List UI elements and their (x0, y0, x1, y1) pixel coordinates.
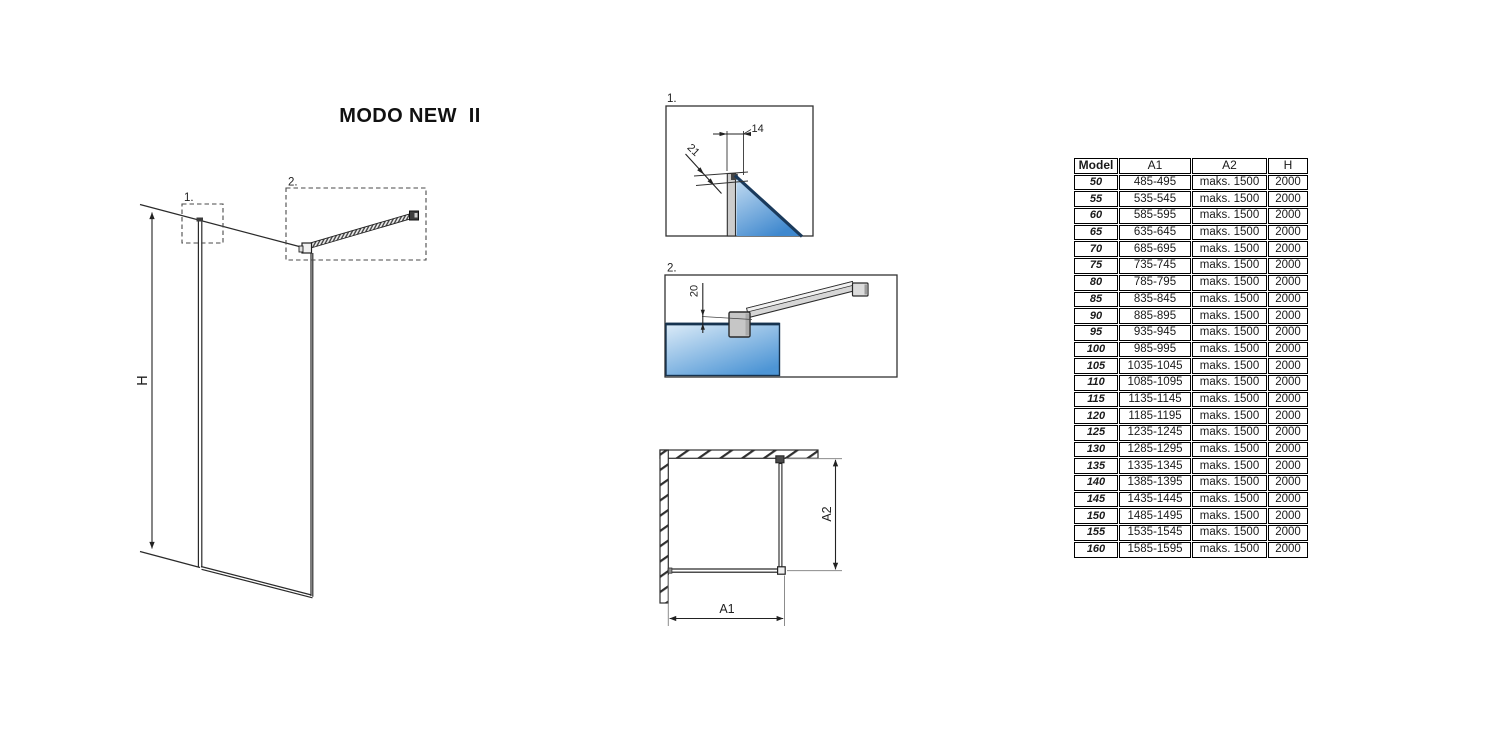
table-cell-a1: 585-595 (1119, 208, 1191, 224)
support-bar-top-view (779, 464, 782, 568)
table-cell-a2: maks. 1500 (1192, 275, 1267, 291)
table-cell-model: 160 (1074, 542, 1118, 558)
table-row: 1201185-1195maks. 15002000 (1074, 408, 1308, 424)
detail-1-callout-box (182, 204, 223, 243)
table-cell-a1: 785-795 (1119, 275, 1191, 291)
detail-1-drawing: 1. 14 21 (655, 88, 830, 246)
table-row: 75735-745maks. 15002000 (1074, 258, 1308, 274)
table-cell-model: 65 (1074, 225, 1118, 241)
table-row: 100985-995maks. 15002000 (1074, 342, 1308, 358)
detail-2-callout-label: 2. (288, 177, 298, 189)
table-cell-model: 75 (1074, 258, 1118, 274)
table-cell-model: 50 (1074, 175, 1118, 191)
table-cell-model: 90 (1074, 308, 1118, 324)
table-cell-a1: 935-945 (1119, 325, 1191, 341)
table-cell-a2: maks. 1500 (1192, 325, 1267, 341)
table-cell-h: 2000 (1268, 525, 1308, 541)
table-cell-a2: maks. 1500 (1192, 308, 1267, 324)
table-cell-model: 115 (1074, 392, 1118, 408)
table-row: 95935-945maks. 15002000 (1074, 325, 1308, 341)
bar-wall-mount-top-view (776, 456, 784, 463)
glass-panel-top-view (668, 569, 781, 572)
table-cell-a2: maks. 1500 (1192, 225, 1267, 241)
table-row: 60585-595maks. 15002000 (1074, 208, 1308, 224)
table-row: 55535-545maks. 15002000 (1074, 191, 1308, 207)
table-cell-a2: maks. 1500 (1192, 175, 1267, 191)
table-cell-h: 2000 (1268, 392, 1308, 408)
glass-section-2 (666, 324, 780, 376)
bar-wall-mount-face (865, 285, 868, 295)
table-cell-a2: maks. 1500 (1192, 358, 1267, 374)
table-cell-model: 125 (1074, 425, 1118, 441)
top-view-drawing: A2 A1 (648, 442, 854, 638)
table-cell-a2: maks. 1500 (1192, 525, 1267, 541)
spec-table: Model A1 A2 H 50485-495maks. 15002000555… (1073, 157, 1309, 559)
table-row: 50485-495maks. 15002000 (1074, 175, 1308, 191)
main-drawing: 1. 2. H (128, 168, 440, 616)
dim-20-label: 20 (689, 285, 701, 297)
header-a2: A2 (1192, 158, 1267, 174)
header-model: Model (1074, 158, 1118, 174)
table-cell-h: 2000 (1268, 175, 1308, 191)
table-cell-h: 2000 (1268, 425, 1308, 441)
table-cell-h: 2000 (1268, 375, 1308, 391)
table-row: 1501485-1495maks. 15002000 (1074, 508, 1308, 524)
table-cell-a1: 1385-1395 (1119, 475, 1191, 491)
detail-2-label: 2. (667, 263, 677, 275)
table-cell-h: 2000 (1268, 208, 1308, 224)
table-cell-h: 2000 (1268, 191, 1308, 207)
glass-clamp-shade (746, 314, 750, 336)
table-cell-a1: 1285-1295 (1119, 442, 1191, 458)
table-cell-a1: 1135-1145 (1119, 392, 1191, 408)
svg-defs (0, 0, 2, 2)
table-cell-a2: maks. 1500 (1192, 241, 1267, 257)
table-cell-h: 2000 (1268, 292, 1308, 308)
table-cell-h: 2000 (1268, 225, 1308, 241)
wall-top (660, 450, 818, 458)
table-cell-model: 145 (1074, 492, 1118, 508)
table-cell-h: 2000 (1268, 542, 1308, 558)
table-cell-h: 2000 (1268, 275, 1308, 291)
product-title: MODO NEW II (330, 105, 490, 128)
table-cell-a2: maks. 1500 (1192, 458, 1267, 474)
table-row: 1351335-1345maks. 15002000 (1074, 458, 1308, 474)
wall-anchor-notch (415, 213, 418, 218)
table-cell-a2: maks. 1500 (1192, 508, 1267, 524)
table-cell-a1: 535-545 (1119, 191, 1191, 207)
table-cell-h: 2000 (1268, 325, 1308, 341)
table-cell-a1: 1535-1545 (1119, 525, 1191, 541)
table-cell-h: 2000 (1268, 442, 1308, 458)
dim-a2-label: A2 (820, 506, 834, 521)
table-row: 90885-895maks. 15002000 (1074, 308, 1308, 324)
table-cell-a1: 485-495 (1119, 175, 1191, 191)
table-cell-a1: 635-645 (1119, 225, 1191, 241)
table-cell-h: 2000 (1268, 342, 1308, 358)
table-cell-h: 2000 (1268, 458, 1308, 474)
table-cell-h: 2000 (1268, 475, 1308, 491)
spec-table-container: Model A1 A2 H 50485-495maks. 15002000555… (1073, 157, 1309, 559)
table-row: 1301285-1295maks. 15002000 (1074, 442, 1308, 458)
table-cell-h: 2000 (1268, 358, 1308, 374)
table-cell-a2: maks. 1500 (1192, 408, 1267, 424)
table-cell-a1: 1235-1245 (1119, 425, 1191, 441)
table-cell-model: 55 (1074, 191, 1118, 207)
table-cell-a1: 1185-1195 (1119, 408, 1191, 424)
table-cell-model: 60 (1074, 208, 1118, 224)
table-cell-model: 110 (1074, 375, 1118, 391)
table-row: 1401385-1395maks. 15002000 (1074, 475, 1308, 491)
table-cell-a1: 685-695 (1119, 241, 1191, 257)
table-row: 1101085-1095maks. 15002000 (1074, 375, 1308, 391)
spec-table-head: Model A1 A2 H (1074, 158, 1308, 174)
table-row: 1151135-1145maks. 15002000 (1074, 392, 1308, 408)
table-row: 85835-845maks. 15002000 (1074, 292, 1308, 308)
table-cell-a2: maks. 1500 (1192, 542, 1267, 558)
top-bracket-clip (299, 246, 303, 252)
table-cell-a2: maks. 1500 (1192, 258, 1267, 274)
table-cell-a2: maks. 1500 (1192, 492, 1267, 508)
table-cell-model: 130 (1074, 442, 1118, 458)
table-cell-a2: maks. 1500 (1192, 292, 1267, 308)
wall-profile-top-view (668, 568, 672, 573)
table-cell-model: 85 (1074, 292, 1118, 308)
table-row: 1051035-1045maks. 15002000 (1074, 358, 1308, 374)
dimension-a1: A1 (668, 575, 784, 626)
glass-panel-outline (140, 205, 313, 598)
table-cell-a1: 1485-1495 (1119, 508, 1191, 524)
table-cell-h: 2000 (1268, 241, 1308, 257)
table-cell-h: 2000 (1268, 408, 1308, 424)
table-row: 70685-695maks. 15002000 (1074, 241, 1308, 257)
table-cell-a2: maks. 1500 (1192, 392, 1267, 408)
table-cell-a1: 985-995 (1119, 342, 1191, 358)
table-cell-a2: maks. 1500 (1192, 425, 1267, 441)
bracket-top-view (778, 567, 786, 574)
table-cell-h: 2000 (1268, 308, 1308, 324)
table-cell-model: 105 (1074, 358, 1118, 374)
table-cell-model: 135 (1074, 458, 1118, 474)
height-dimension-label: H (135, 375, 151, 385)
table-cell-a1: 885-895 (1119, 308, 1191, 324)
table-cell-a1: 1085-1095 (1119, 375, 1191, 391)
header-h: H (1268, 158, 1308, 174)
dim-14-label: 14 (752, 123, 764, 135)
table-cell-model: 80 (1074, 275, 1118, 291)
table-cell-a2: maks. 1500 (1192, 342, 1267, 358)
detail-1-label: 1. (667, 93, 677, 105)
table-cell-a1: 835-845 (1119, 292, 1191, 308)
table-cell-a1: 735-745 (1119, 258, 1191, 274)
table-cell-a1: 1585-1595 (1119, 542, 1191, 558)
table-cell-a2: maks. 1500 (1192, 475, 1267, 491)
diagram-page: MODO NEW II 1. 2. H 1. (0, 0, 1500, 756)
table-row: 1451435-1445maks. 15002000 (1074, 492, 1308, 508)
table-cell-model: 155 (1074, 525, 1118, 541)
wall-profile-cap (197, 218, 204, 222)
table-cell-h: 2000 (1268, 258, 1308, 274)
table-cell-model: 70 (1074, 241, 1118, 257)
table-cell-model: 150 (1074, 508, 1118, 524)
dimension-a2: A2 (786, 459, 842, 571)
table-cell-a2: maks. 1500 (1192, 375, 1267, 391)
detail-2-drawing: 2. 20 (648, 256, 910, 384)
header-row: Model A1 A2 H (1074, 158, 1308, 174)
table-cell-a1: 1035-1045 (1119, 358, 1191, 374)
wall-left (660, 450, 668, 603)
spec-table-body: 50485-495maks. 1500200055535-545maks. 15… (1074, 175, 1308, 558)
table-cell-a1: 1335-1345 (1119, 458, 1191, 474)
detail-1-callout-label: 1. (184, 192, 194, 204)
dim-a1-label: A1 (719, 602, 734, 616)
table-cell-model: 100 (1074, 342, 1118, 358)
support-bar (306, 214, 410, 249)
header-a1: A1 (1119, 158, 1191, 174)
table-cell-a2: maks. 1500 (1192, 208, 1267, 224)
table-cell-h: 2000 (1268, 508, 1308, 524)
table-row: 1251235-1245maks. 15002000 (1074, 425, 1308, 441)
table-row: 80785-795maks. 15002000 (1074, 275, 1308, 291)
table-row: 1551535-1545maks. 15002000 (1074, 525, 1308, 541)
table-row: 65635-645maks. 15002000 (1074, 225, 1308, 241)
table-cell-a2: maks. 1500 (1192, 442, 1267, 458)
table-cell-h: 2000 (1268, 492, 1308, 508)
table-cell-model: 120 (1074, 408, 1118, 424)
table-row: 1601585-1595maks. 15002000 (1074, 542, 1308, 558)
table-cell-model: 140 (1074, 475, 1118, 491)
table-cell-a2: maks. 1500 (1192, 191, 1267, 207)
table-cell-model: 95 (1074, 325, 1118, 341)
table-cell-a1: 1435-1445 (1119, 492, 1191, 508)
